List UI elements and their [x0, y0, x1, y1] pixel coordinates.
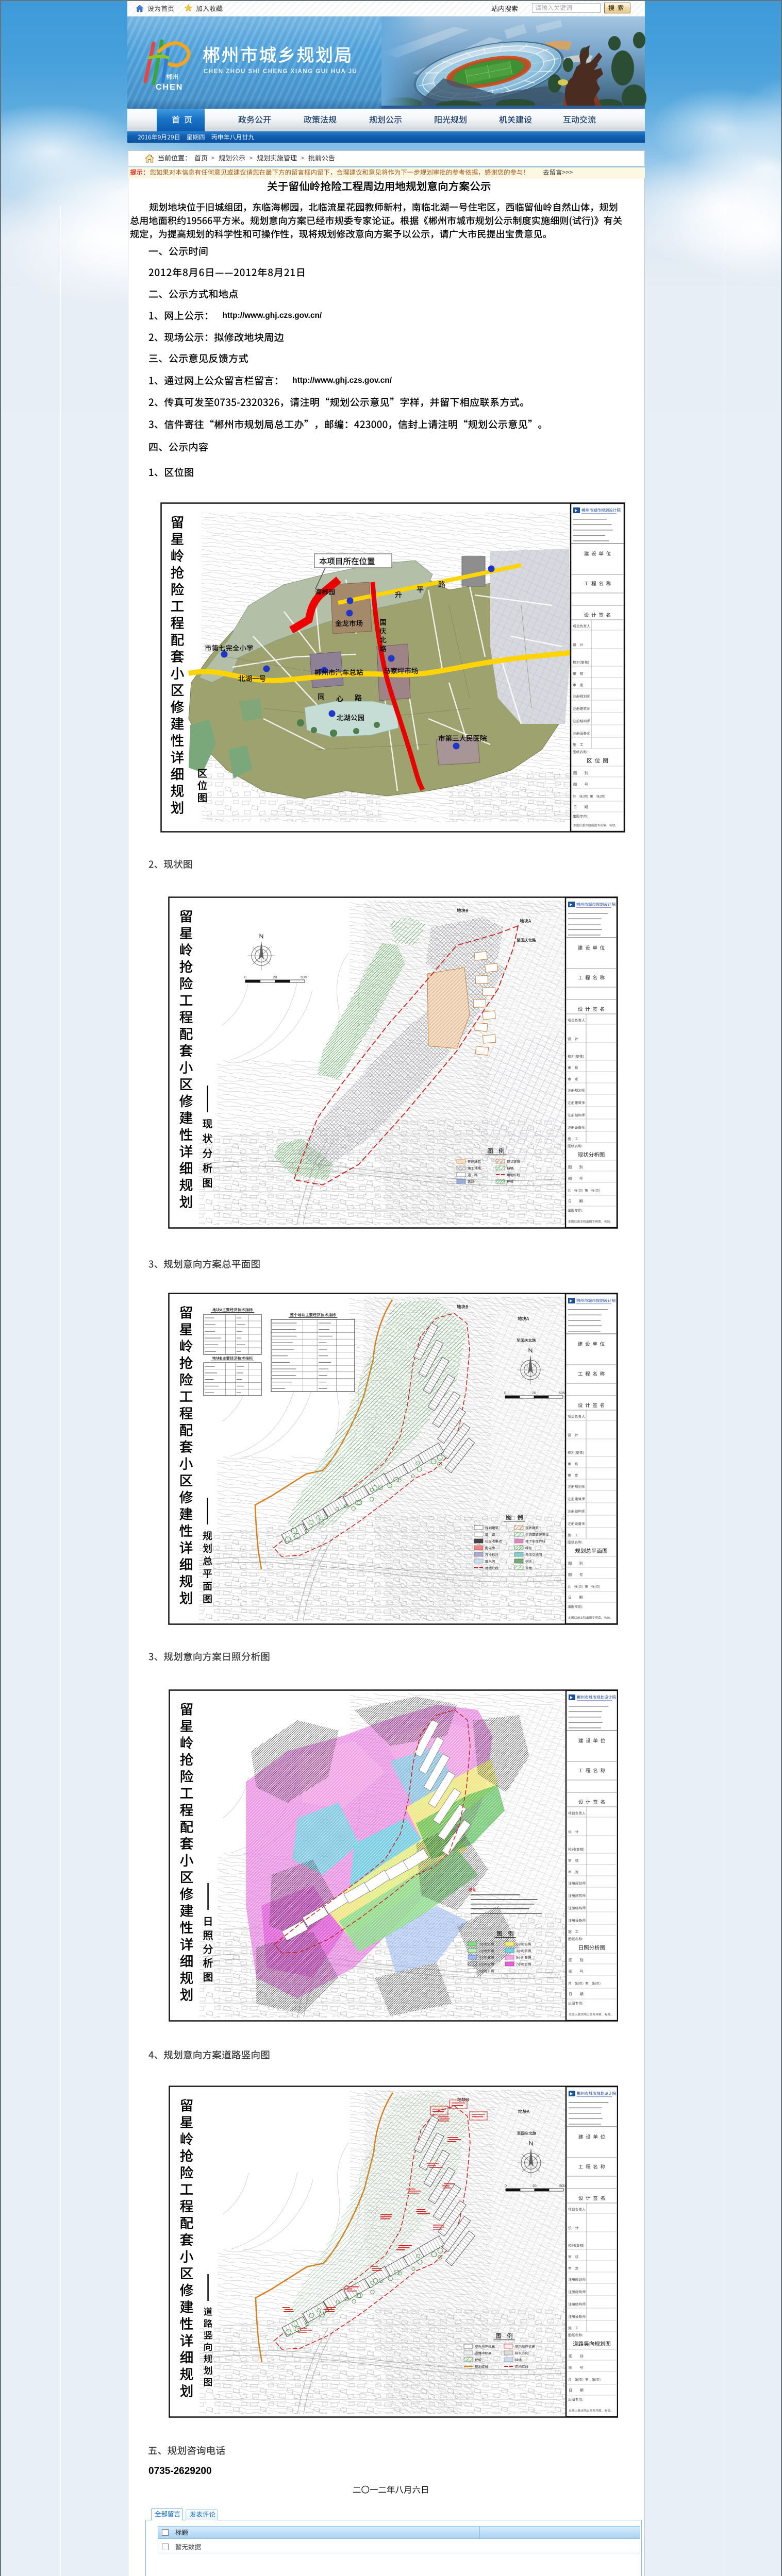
svg-text:0: 0 — [244, 976, 246, 979]
svg-text:0: 0 — [504, 1392, 506, 1395]
svg-text:50M: 50M — [559, 1392, 566, 1395]
svg-text:0: 0 — [505, 2184, 507, 2188]
svg-text:20: 20 — [532, 1392, 536, 1395]
svg-text:20: 20 — [273, 976, 277, 979]
svg-text:50M: 50M — [559, 2184, 567, 2188]
svg-text:20: 20 — [533, 2184, 537, 2188]
svg-text:50M: 50M — [301, 976, 308, 979]
svg-text:CHEN: CHEN — [156, 83, 183, 92]
